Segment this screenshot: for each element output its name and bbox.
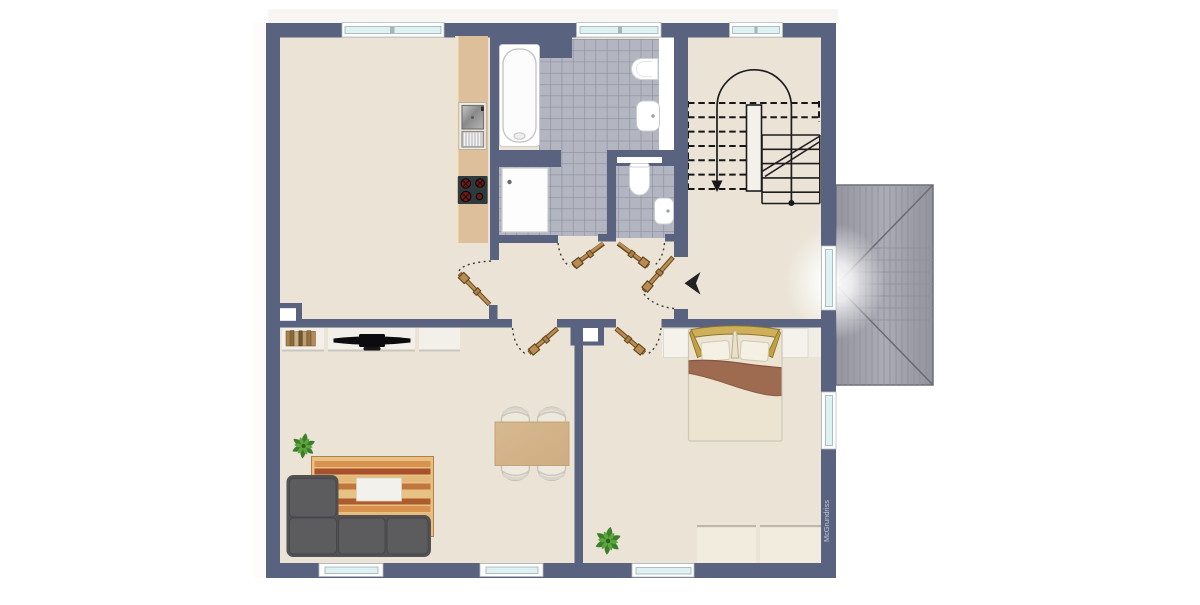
svg-text:McGrundriss: McGrundriss: [822, 500, 831, 542]
